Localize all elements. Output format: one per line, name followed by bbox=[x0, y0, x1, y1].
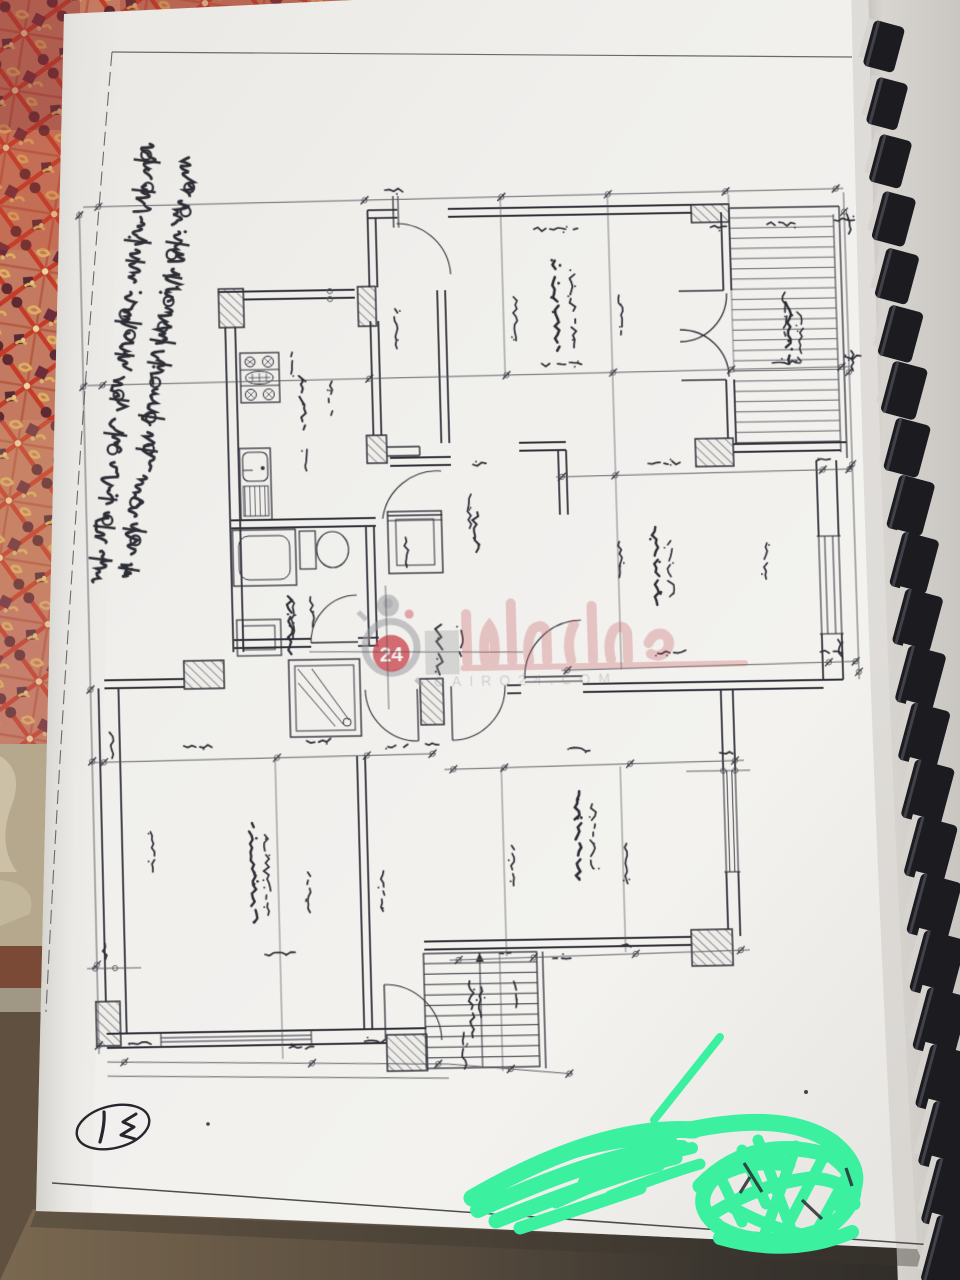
svg-text:24: 24 bbox=[379, 643, 403, 667]
svg-text:CAIRO24.COM: CAIRO24.COM bbox=[434, 670, 619, 689]
